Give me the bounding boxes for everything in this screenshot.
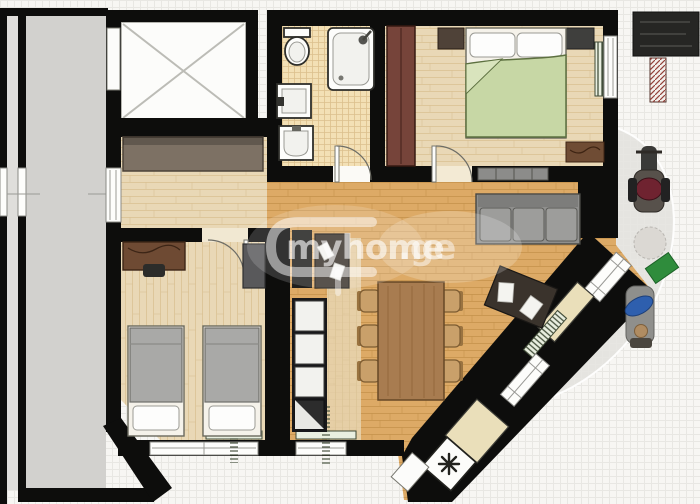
- ladder-rack: [650, 58, 666, 102]
- shelf-unit: [292, 298, 327, 432]
- dining-table: [378, 282, 444, 400]
- toilet-icon: [284, 28, 310, 65]
- dark-storage-box: [633, 12, 699, 56]
- watermark-suffix: .ge: [398, 228, 455, 268]
- window: [0, 168, 7, 216]
- bedroom-master-window: [595, 36, 617, 98]
- hallway-furniture: [123, 137, 263, 171]
- washing-machine-icon: [277, 84, 311, 118]
- floor-plan: myhome .ge: [0, 0, 700, 504]
- low-dresser: [478, 168, 548, 180]
- chair: [357, 290, 380, 312]
- shower-tub-icon: [328, 28, 374, 90]
- nightstand: [438, 28, 464, 49]
- single-bed: [128, 326, 184, 436]
- chair: [357, 360, 380, 382]
- nightstand: [566, 28, 594, 49]
- cyclist-icon: [622, 286, 656, 348]
- chair: [357, 325, 380, 347]
- fan-symbol-icon: [439, 454, 459, 474]
- single-bed: [203, 326, 261, 436]
- patio-table: [634, 227, 666, 259]
- double-bed: [466, 28, 566, 138]
- floor-plan-page: myhome .ge: [0, 0, 700, 504]
- desk-chair: [143, 264, 165, 277]
- corridor-floor: [26, 16, 106, 490]
- storage-room: [121, 22, 246, 120]
- corridor-outer-strip: [7, 16, 18, 490]
- door-storage: [107, 28, 120, 90]
- entrance-door: [106, 168, 121, 222]
- bench: [566, 142, 604, 162]
- window: [18, 168, 26, 216]
- sink-icon: [279, 126, 313, 160]
